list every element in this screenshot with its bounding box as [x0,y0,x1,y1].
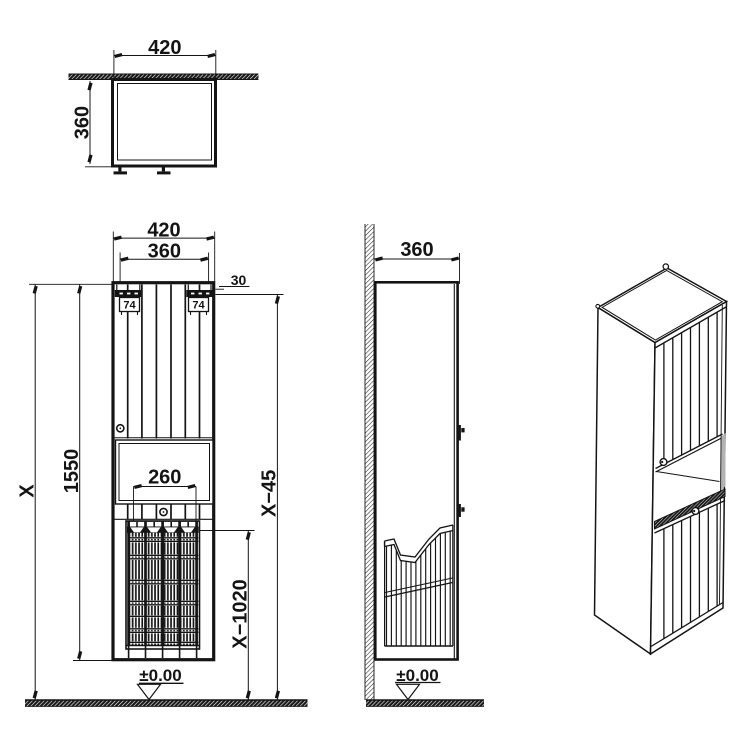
svg-text:X−1020: X−1020 [230,579,252,649]
svg-text:74: 74 [192,300,205,312]
svg-text:30: 30 [231,272,247,288]
svg-text:1550: 1550 [61,449,83,494]
svg-text:420: 420 [147,220,180,242]
svg-text:420: 420 [148,37,181,59]
svg-text:±0.00: ±0.00 [139,666,181,685]
svg-text:X−45: X−45 [259,470,281,517]
svg-text:74: 74 [123,300,136,312]
svg-text:X: X [16,484,38,498]
svg-text:360: 360 [71,106,93,139]
svg-text:260: 260 [148,467,181,489]
svg-text:360: 360 [400,239,433,261]
svg-text:360: 360 [148,240,181,262]
